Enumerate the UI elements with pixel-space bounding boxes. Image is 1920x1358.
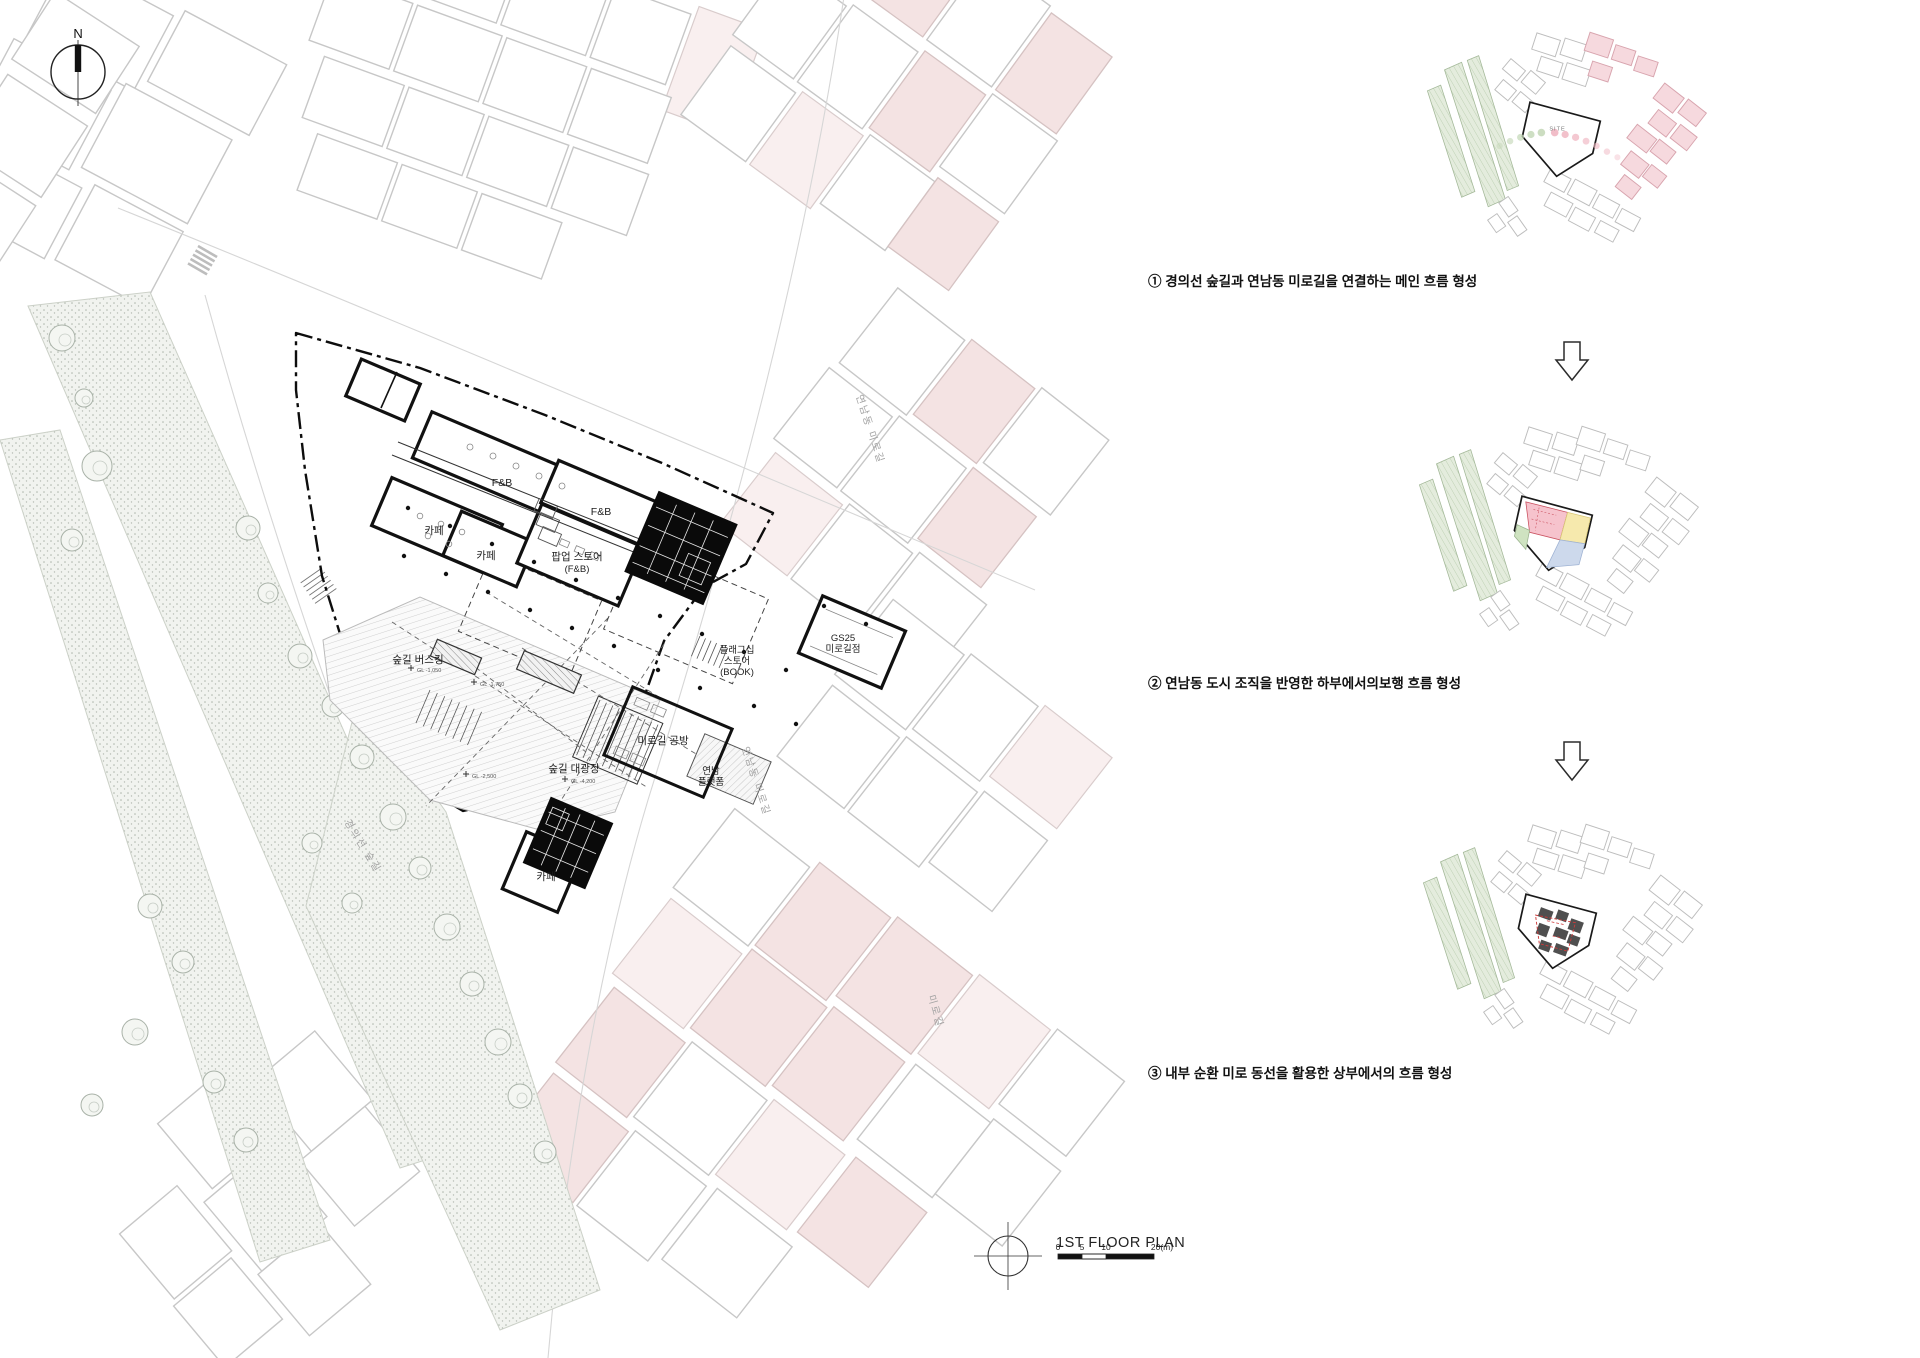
area-label-plaza: 숲길 대광장 bbox=[548, 762, 600, 775]
room-label-gs25-1: GS25 bbox=[831, 633, 855, 644]
area-label-platform-1: 연남 bbox=[702, 766, 720, 777]
diagram-caption-3: ③ 내부 순환 미로 동선을 활용한 상부에서의 흐름 형성 bbox=[1148, 1062, 1748, 1082]
area-label-platform-2: 플랫폼 bbox=[698, 777, 724, 788]
diagram-2-lower-flow bbox=[1419, 423, 1704, 644]
level-label: GL -1,050 bbox=[417, 668, 441, 674]
room-label-popup-2: (F&B) bbox=[565, 564, 590, 575]
room-label-fnb-a: F&B bbox=[492, 477, 512, 489]
room-label-flagship-2: 스토어 bbox=[724, 656, 750, 667]
diagram-1-main-flow: SITE bbox=[1427, 29, 1712, 250]
site-plan-map: 카페 F&B 카페 F&B 팝업 스토어 (F&B) 플래그십 스토어 (BOO… bbox=[0, 0, 1210, 1358]
level-label: GL -4,200 bbox=[571, 779, 595, 785]
scale-tick-10: 10 bbox=[1101, 1242, 1111, 1252]
site-label: SITE bbox=[1549, 127, 1565, 133]
scale-tick-5: 5 bbox=[1080, 1242, 1085, 1252]
area-label-busking: 숲길 버스킹 bbox=[392, 653, 443, 666]
level-label: GL -2,500 bbox=[472, 774, 496, 780]
diagram-caption-2: ② 연남동 도시 조직을 반영한 하부에서의보행 흐름 형성 bbox=[1148, 672, 1748, 692]
room-label-workshop: 미로길 공방 bbox=[637, 734, 689, 747]
concept-diagram-column: SITE bbox=[1140, 0, 1820, 1358]
scale-tick-0: 0 bbox=[1056, 1242, 1061, 1252]
room-label-popup-1: 팝업 스토어 bbox=[551, 550, 602, 563]
level-label: GL -1,750 bbox=[480, 682, 504, 688]
diagram-caption-1: ① 경의선 숲길과 연남동 미로길을 연결하는 메인 흐름 형성 bbox=[1148, 270, 1748, 290]
room-label-gs25-2: 미로길점 bbox=[826, 643, 861, 655]
room-label-cafe-c: 카페 bbox=[536, 871, 555, 883]
north-label: N bbox=[73, 26, 82, 41]
room-label-flagship-1: 플래그십 bbox=[720, 645, 755, 656]
down-arrow-icon bbox=[1556, 342, 1588, 380]
room-label-cafe-b: 카페 bbox=[476, 550, 495, 562]
room-label-flagship-3: (BOOK) bbox=[720, 667, 754, 678]
down-arrow-icon bbox=[1556, 742, 1588, 780]
diagram-3-upper-flow bbox=[1423, 821, 1708, 1042]
room-label-cafe-a: 카페 bbox=[424, 525, 443, 537]
architectural-board: { "plan": { "north_label": "N", "title":… bbox=[0, 0, 1920, 1358]
room-label-fnb-b: F&B bbox=[591, 506, 611, 518]
